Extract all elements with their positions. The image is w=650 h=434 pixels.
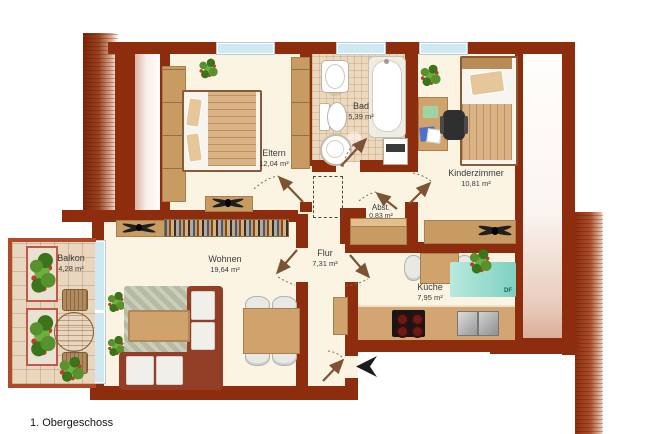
wall — [345, 378, 358, 400]
stove — [392, 310, 425, 337]
pillow — [185, 132, 203, 163]
room-label-flur: Flur 7,31 m² — [312, 248, 337, 268]
plant-icon — [417, 63, 443, 89]
roof-slope-left — [135, 54, 160, 212]
bed-blanket — [208, 92, 256, 166]
plant-icon — [28, 248, 56, 300]
stereo-icon — [122, 222, 156, 233]
window — [217, 43, 274, 54]
pillow — [185, 97, 203, 128]
balcony-parapet — [8, 384, 96, 388]
window-mullion — [94, 310, 104, 313]
window — [420, 43, 467, 54]
toilet — [327, 102, 347, 132]
tv-icon — [212, 197, 244, 209]
room-label-kueche: Küche 7,95 m² — [417, 282, 443, 302]
double-bed — [182, 90, 262, 172]
roof-hatch-right — [575, 212, 603, 434]
wall — [300, 202, 312, 212]
room-label-balkon: Balkon 4,28 m² — [57, 253, 85, 273]
plant-icon — [466, 247, 494, 277]
faucet — [384, 59, 389, 64]
bookshelf — [164, 219, 289, 237]
sink-basin — [478, 311, 499, 336]
wall — [296, 214, 308, 248]
plant-icon — [55, 355, 87, 385]
room-label-abstellraum: Abst. 0,83 m² — [369, 203, 393, 221]
coffee-table — [128, 310, 190, 342]
roof-window-label: DF — [504, 288, 512, 294]
room-label-bad: Bad 5,39 m² — [348, 101, 373, 121]
wall — [562, 42, 575, 355]
shaft-outline — [313, 176, 343, 218]
window — [337, 43, 385, 54]
storage-shelf — [350, 218, 407, 245]
sink-basin — [457, 311, 478, 336]
room-label-eltern: Eltern 12,04 m² — [259, 148, 289, 168]
single-bed — [460, 56, 518, 166]
room-label-wohnen: Wohnen 19,64 m² — [208, 254, 241, 274]
wall — [115, 42, 135, 214]
floor-plan: DF Balkon 4,28 m² Eltern 12,04 m² Bad 5,… — [0, 0, 650, 434]
floor-title: 1. Obergeschoss — [30, 417, 113, 429]
planter-box — [26, 308, 58, 366]
north-arrow-icon — [356, 356, 377, 377]
bathtub — [368, 56, 406, 138]
pillow — [469, 70, 506, 97]
planter-box — [26, 246, 58, 302]
roof-slope-right — [523, 54, 562, 340]
balcony-table — [54, 312, 94, 352]
room-label-kinderzimmer: Kinderzimmer 10,81 m² — [448, 168, 504, 188]
bathroom-sink — [321, 60, 349, 93]
dining-table — [243, 308, 300, 354]
roof-hatch-left — [83, 33, 118, 215]
wall — [340, 208, 366, 218]
ceiling-fan-icon — [478, 224, 512, 238]
wall — [490, 340, 575, 354]
bed-blanket — [462, 104, 512, 160]
office-chair — [443, 110, 465, 140]
plant-icon — [28, 310, 56, 364]
shower — [320, 134, 352, 166]
plant-icon — [196, 57, 220, 81]
washing-machine — [383, 138, 408, 165]
hall-cabinet — [333, 297, 348, 335]
wardrobe — [291, 57, 310, 169]
balcony-chair — [62, 289, 88, 311]
paper — [423, 106, 438, 118]
wall — [345, 348, 358, 356]
bed-headboard — [462, 58, 512, 69]
sofa-bottom-arm — [119, 352, 223, 390]
